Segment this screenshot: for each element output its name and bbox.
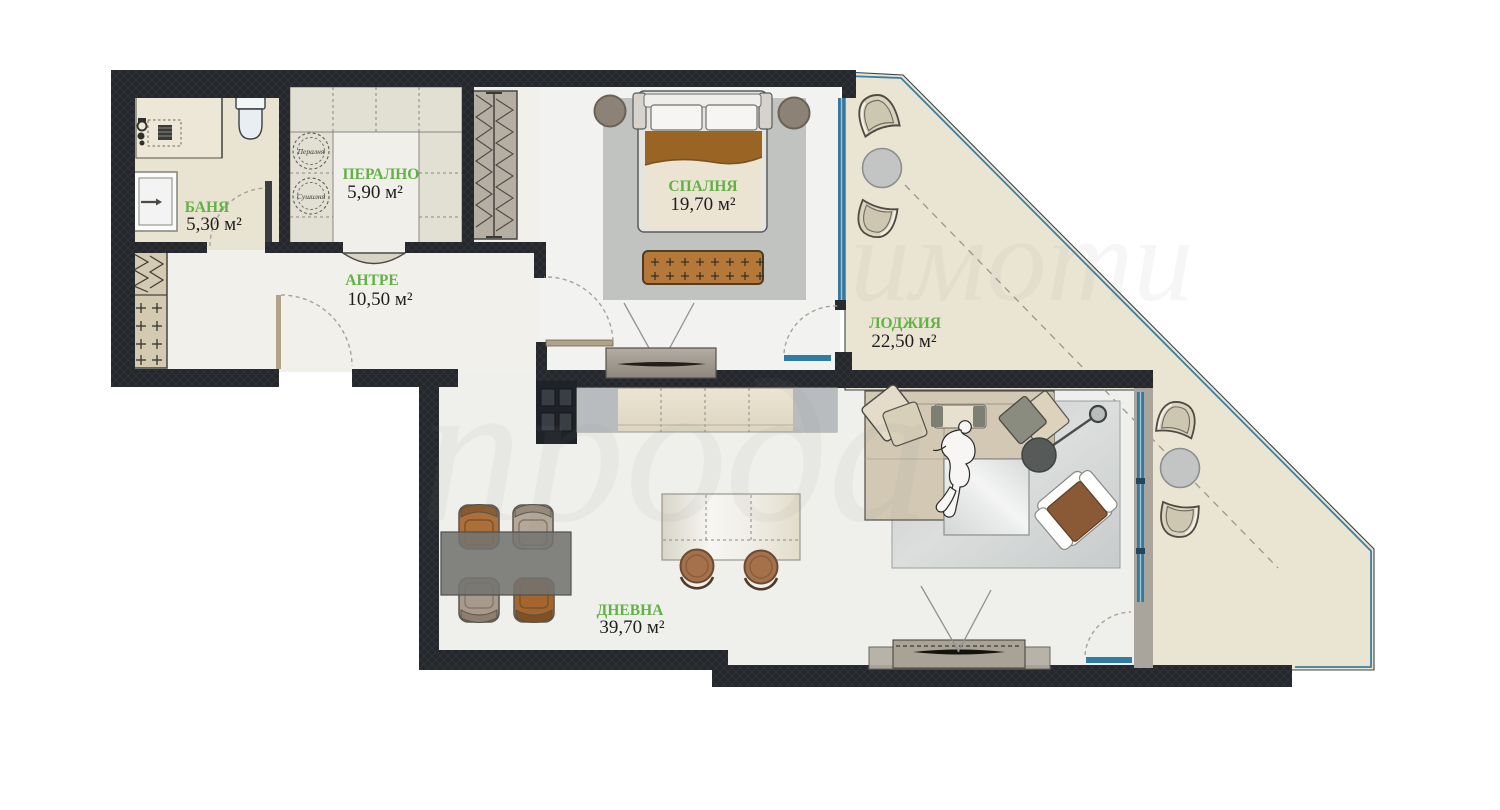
svg-text:ЛОДЖИЯ: ЛОДЖИЯ (869, 315, 941, 332)
svg-text:39,70 м²: 39,70 м² (599, 617, 665, 638)
svg-text:5,30 м²: 5,30 м² (186, 214, 242, 235)
svg-text:22,50 м²: 22,50 м² (871, 331, 937, 352)
svg-text:прода: прода (420, 338, 931, 565)
svg-text:имоти: имоти (850, 193, 1193, 326)
svg-text:19,70 м²: 19,70 м² (670, 194, 736, 215)
svg-text:СПАЛНЯ: СПАЛНЯ (668, 178, 737, 195)
svg-text:10,50 м²: 10,50 м² (347, 289, 413, 310)
svg-text:ПЕРАЛНО: ПЕРАЛНО (343, 166, 420, 183)
svg-text:Пералня: Пералня (297, 147, 325, 156)
svg-text:АНТРЕ: АНТРЕ (345, 272, 398, 289)
svg-text:5,90 м²: 5,90 м² (347, 182, 403, 203)
svg-text:Сушилня: Сушилня (297, 192, 326, 201)
